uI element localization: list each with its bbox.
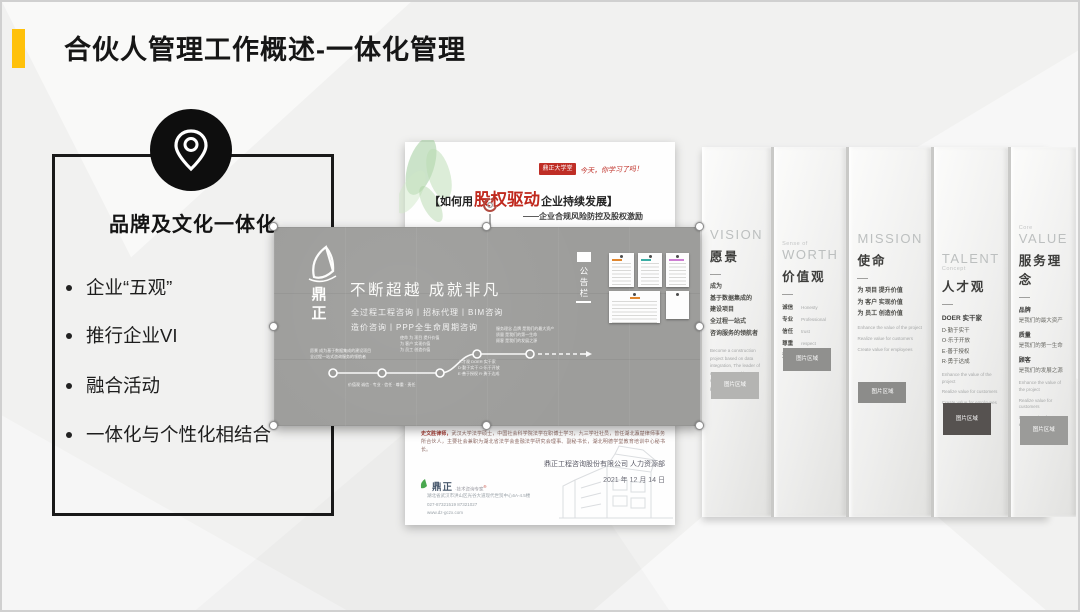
page-title: 合伙人管理工作概述-一体化管理: [64, 28, 466, 67]
selection-handle-top-center[interactable]: [482, 222, 491, 231]
notice-card-wide: [609, 291, 660, 323]
footer-brand-text: 鼎正: [432, 479, 453, 493]
noticeboard-title: 公告栏: [578, 266, 590, 299]
footer-tagline: ·技术咨询专家®: [455, 484, 486, 493]
vision-line: 基于数据集成的: [710, 294, 763, 306]
divider: [782, 294, 793, 295]
bullet-dot: [66, 333, 72, 339]
vision-line: 全过程一站式: [710, 317, 763, 329]
notice-card: [666, 253, 689, 287]
vision-line: 成为: [710, 282, 763, 294]
image-placeholder-box: 图片区域: [783, 348, 831, 371]
footer-logo: 鼎正 ·技术咨询专家®: [419, 478, 486, 493]
card-text-lines: [612, 263, 631, 287]
column-zh-title: 服务理念: [1019, 250, 1068, 288]
list-item: 企业“五观”: [66, 276, 172, 300]
bullet-text: 融合活动: [86, 374, 160, 398]
selection-handle-middle-right[interactable]: [695, 322, 704, 331]
bio-lead: 史文胜律师，: [421, 431, 452, 437]
pin-dot: [649, 255, 652, 258]
divider: [1019, 297, 1030, 298]
timeline-values-text: 价值观 诚信 · 专业 · 信任 · 尊重 · 责任: [348, 382, 438, 388]
image-placeholder-box: 图片区域: [858, 382, 906, 403]
poster-subtitle: ——企业合规风险防控及股权激励: [523, 211, 643, 222]
footer-address: 湖北省武汉市洪山区光谷大道现代世贸中心6A-4.5楼: [427, 492, 530, 501]
bullet-text: 一体化与个性化相结合: [86, 423, 271, 447]
column-en-title: WORTH: [782, 247, 838, 262]
notice-card-blank: [666, 291, 689, 319]
value-pair: 专业Professional: [782, 314, 838, 326]
location-pin-badge[interactable]: [150, 109, 232, 191]
timeline-talent-text: 人才观 DOER 实干家 D·勤于实干 O·乐于开放 E·善于授权 R·勇于达成: [458, 359, 522, 377]
pin-dot: [676, 293, 679, 296]
panel-column-mission: MISSION 使命 为 项目 提升价值 为 客户 实现价值 为 员工 创造价值…: [849, 147, 930, 517]
mission-line: 为 员工 创造价值: [857, 309, 922, 321]
bullet-text: 推行企业VI: [86, 324, 177, 348]
bullet-dot: [66, 285, 72, 291]
panel-column-vision: VISION 愿景 成为 基于数据集成的 建设项目 全过程一站式 咨询服务的领航…: [702, 147, 771, 517]
timeline-graphic: [274, 227, 700, 426]
service-group: 顾客是我们的发展之源: [1019, 355, 1068, 374]
column-zh-title: 愿景: [710, 246, 763, 265]
poster-title-suffix: 企业持续发展】: [541, 193, 618, 209]
card-text-lines: [669, 263, 686, 287]
timeline-mission-text: 使命 为 项目 提升价值 为 客户 实现价值 为 员工 创造价值: [400, 335, 448, 353]
image-placeholder-box: 图片区域: [1020, 416, 1068, 445]
bullet-text: 企业“五观”: [86, 276, 172, 300]
poster-title-prefix: 【如何用: [429, 193, 473, 209]
list-item: 一体化与个性化相结合: [66, 423, 271, 447]
notice-card: [609, 253, 634, 287]
culture-panels-image[interactable]: VISION 愿景 成为 基于数据集成的 建设项目 全过程一站式 咨询服务的领航…: [702, 147, 1048, 517]
card-header-bar: [669, 259, 684, 261]
mission-line: 为 客户 实现价值: [857, 298, 922, 310]
column-zh-title: 使命: [857, 250, 922, 269]
footer-website: www.dz-gczx.com: [427, 509, 530, 518]
noticeboard-header-block: [577, 252, 591, 262]
talent-line: O·乐于开放: [942, 336, 1000, 346]
selection-handle-top-right[interactable]: [695, 222, 704, 231]
pin-dot: [620, 255, 623, 258]
timeline-vision-text: 愿景 成为基于数据集成的建设项目 全过程一站式咨询服务的领航者: [310, 348, 372, 360]
card-text-lines: [641, 263, 659, 287]
card-header-bar: [612, 259, 622, 261]
image-placeholder-box: 图片区域: [943, 403, 991, 435]
mission-en-line: Enhance the value of the project: [857, 325, 922, 332]
card-text-lines: [612, 301, 657, 323]
pin-dot: [633, 293, 636, 296]
value-pair: 信任trust: [782, 326, 838, 338]
timeline-service-text: 服务理念 品牌 是我们的最大资产 质量 是我们的第一生命 顾客 是我们的发展之源: [496, 326, 570, 344]
slide: 合伙人管理工作概述-一体化管理 品牌及文化一体化 企业“五观” 推行企业VI 融…: [0, 0, 1080, 612]
service-group: 质量是我们的第一生命: [1019, 330, 1068, 349]
talent-line: E·善于授权: [942, 347, 1000, 357]
building-sketch: [555, 440, 677, 522]
card-header-bar: [641, 259, 651, 261]
selection-handle-bottom-center[interactable]: [482, 421, 491, 430]
column-en-title: MISSION: [857, 231, 922, 246]
talent-line: D·勤于实干: [942, 326, 1000, 336]
noticeboard-underline: [576, 301, 591, 303]
value-en-line: Enhance the value of the project: [1019, 380, 1068, 394]
vision-line: 咨询服务的领航者: [710, 329, 763, 341]
value-pair: 诚信Honesty: [782, 302, 838, 314]
column-zh-title: 价值观: [782, 266, 838, 285]
location-pin-icon: [171, 128, 211, 172]
culture-wall-banner-image[interactable]: 鼎 正 不断超越 成就非凡 全过程工程咨询丨招标代理丨BIM咨询 造价咨询丨PP…: [274, 227, 700, 426]
list-item: 融合活动: [66, 374, 160, 398]
mission-line: 为 项目 提升价值: [857, 286, 922, 298]
selection-handle-bottom-left[interactable]: [269, 421, 278, 430]
talent-line: R·勇于达成: [942, 357, 1000, 367]
column-zh-title: 人才观: [942, 276, 1000, 295]
divider: [857, 278, 868, 279]
talent-en-line: Realize value for customers: [942, 389, 1000, 396]
column-en-title: VALUE: [1019, 231, 1068, 246]
mission-en-line: Realize value for customers: [857, 336, 922, 343]
divider: [942, 304, 953, 305]
value-en-line: Realize value for customers: [1019, 398, 1068, 412]
talent-en-line: Enhance the value of the project: [942, 372, 1000, 386]
vision-line: 建设项目: [710, 305, 763, 317]
red-seal-badge: 鼎正大学堂: [539, 163, 576, 175]
pin-dot: [676, 255, 679, 258]
list-item: 推行企业VI: [66, 324, 177, 348]
footer-contact-lines: 湖北省武汉市洪山区光谷大道现代世贸中心6A-4.5楼 027-87321519 …: [427, 492, 530, 518]
column-en-title: TALENT: [942, 251, 1000, 266]
column-en-title: VISION: [710, 227, 763, 242]
poster-title: 【如何用 股权驱动 企业持续发展】: [429, 186, 618, 210]
footer-phone: 027-87321519 87321027: [427, 501, 530, 510]
panel-column-value: Core VALUE 服务理念 品牌是我们的最大资产 质量是我们的第一生命 顾客…: [1011, 147, 1076, 517]
service-group: 品牌是我们的最大资产: [1019, 305, 1068, 324]
notice-card: [638, 253, 662, 287]
circular-arrow-icon: [481, 196, 499, 214]
badge-script-text: 今天，你学习了吗！: [580, 164, 643, 176]
card-header-bar: [630, 297, 640, 299]
divider: [710, 274, 721, 275]
talent-doer-line: DOER 实干家: [942, 312, 1000, 322]
selection-handle-middle-left[interactable]: [269, 322, 278, 331]
selection-handle-bottom-right[interactable]: [695, 421, 704, 430]
bullet-dot: [66, 383, 72, 389]
title-accent-bar: [12, 29, 25, 68]
mission-en-line: Create value for employees: [857, 347, 922, 354]
green-sail-icon: [419, 478, 429, 490]
column-eyebrow: Concept: [942, 266, 1000, 272]
panel-column-talent: TALENT Concept 人才观 DOER 实干家 D·勤于实干 O·乐于开…: [934, 147, 1008, 517]
selection-handle-top-left[interactable]: [269, 222, 278, 231]
panel-column-worth: Sense of WORTH 价值观 诚信Honesty 专业Professio…: [774, 147, 846, 517]
bullet-dot: [66, 432, 72, 438]
image-placeholder-box: 图片区域: [711, 372, 759, 399]
